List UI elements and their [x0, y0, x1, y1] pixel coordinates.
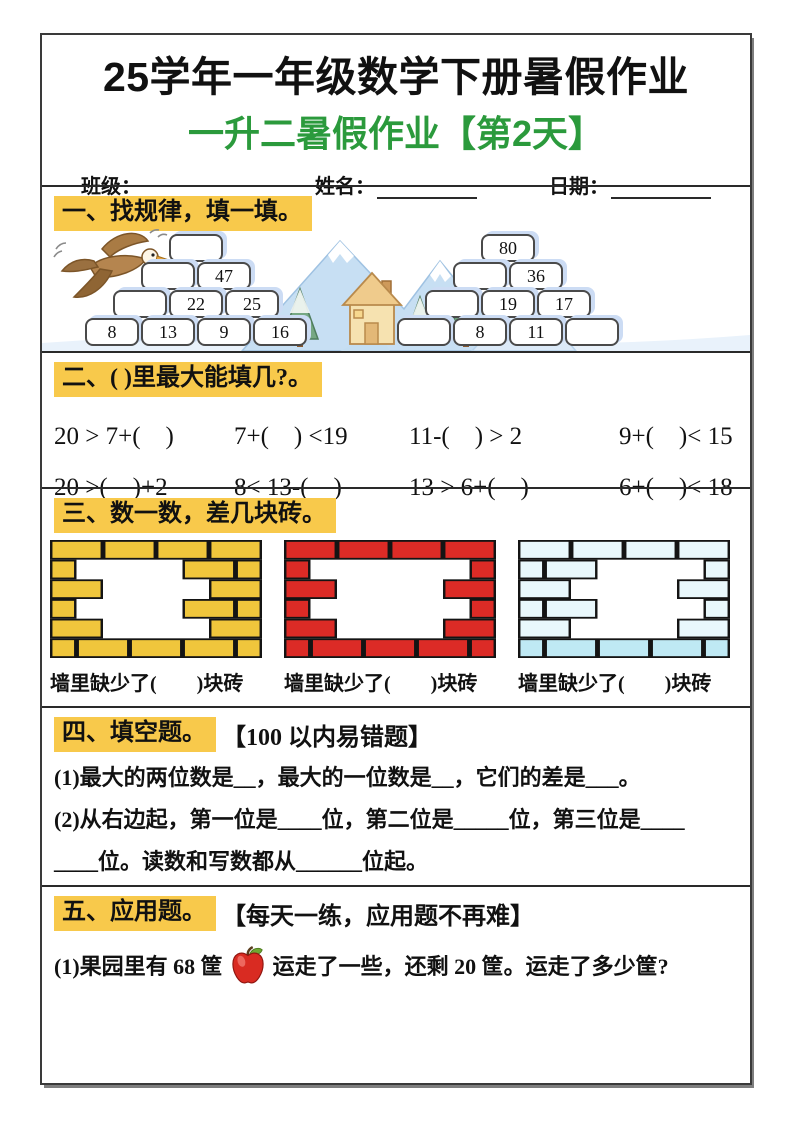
- pyramid-brick: 47: [197, 262, 251, 290]
- number-pyramid-left: 47 22 25 8 13 9 16: [84, 234, 308, 346]
- pyramid-brick: [565, 318, 619, 346]
- fill-blank-line: (1)最大的两位数是__，最大的一位数是__，它们的差是___。: [54, 757, 738, 799]
- section-2-max-fill: 二、( )里最大能填几?。 20 > 7+( ) 7+( ) <19 11-( …: [42, 351, 750, 487]
- wall-column: 墙里缺少了( )块砖: [50, 540, 274, 696]
- brick-wall-yellow: [50, 540, 262, 658]
- brick-wall-red: [284, 540, 496, 658]
- section-5-word-problem: 五、应用题。 【每天一练，应用题不再难】 (1)果园里有 68 筐 运走了一些，…: [42, 885, 750, 1083]
- wall-caption: 墙里缺少了( )块砖: [50, 667, 274, 696]
- section-4-title: 四、填空题。: [54, 717, 216, 752]
- section-5-title: 五、应用题。: [54, 896, 216, 931]
- worksheet-header: 25学年一年级数学下册暑假作业 一升二暑假作业【第2天】 班级： 姓名： 日期：: [42, 35, 750, 185]
- question-text-after: 运走了一些，还剩 20 筐。运走了多少筐?: [273, 949, 669, 981]
- section-2-title: 二、( )里最大能填几?。: [54, 362, 322, 397]
- wall-column: 墙里缺少了( )块砖: [518, 540, 742, 696]
- section-4-header: 四、填空题。 【100 以内易错题】: [42, 708, 750, 752]
- fill-blank-line: (2)从右边起，第一位是____位，第二位是_____位，第三位是____: [54, 799, 738, 841]
- page-subtitle: 一升二暑假作业【第2天】: [42, 105, 750, 157]
- equation-cell: 11-( ) > 2: [409, 416, 619, 452]
- worksheet-page: 25学年一年级数学下册暑假作业 一升二暑假作业【第2天】 班级： 姓名： 日期：…: [40, 33, 752, 1085]
- pyramid-brick: 22: [169, 290, 223, 318]
- section-3-count-bricks: 三、数一数，差几块砖。 墙里缺少了( )块砖 墙里缺少了( )块砖 墙里缺少了(…: [42, 487, 750, 706]
- pyramid-brick: 8: [453, 318, 507, 346]
- pyramid-brick: 11: [509, 318, 563, 346]
- equation-cell: 9+( )< 15: [619, 416, 740, 452]
- pyramid-brick: 80: [481, 234, 535, 262]
- pyramid-brick: 36: [509, 262, 563, 290]
- pyramid-brick: [113, 290, 167, 318]
- section-2-header: 二、( )里最大能填几?。: [42, 353, 750, 397]
- pyramid-brick: 9: [197, 318, 251, 346]
- question-line: (1)果园里有 68 筐 运走了一些，还剩 20 筐。运走了多少筐?: [42, 945, 750, 985]
- pyramid-brick: 16: [253, 318, 307, 346]
- pyramid-brick: 13: [141, 318, 195, 346]
- section-1-title: 一、找规律，填一填。: [54, 196, 312, 231]
- wall-caption: 墙里缺少了( )块砖: [284, 667, 508, 696]
- pyramid-brick: 8: [85, 318, 139, 346]
- pyramid-brick: [141, 262, 195, 290]
- wall-caption: 墙里缺少了( )块砖: [518, 667, 742, 696]
- section-1-pattern: 一、找规律，填一填。: [42, 185, 750, 351]
- number-pyramid-right: 80 36 19 17 8 11: [396, 234, 620, 346]
- pyramid-brick: [453, 262, 507, 290]
- apple-icon: [231, 945, 265, 985]
- equation-cell: 20 > 7+( ): [54, 416, 234, 452]
- equation-row-1: 20 > 7+( ) 7+( ) <19 11-( ) > 2 9+( )< 1…: [42, 416, 750, 452]
- page-title: 25学年一年级数学下册暑假作业: [42, 43, 750, 103]
- section-4-subtitle: 【100 以内易错题】: [222, 717, 432, 752]
- pyramid-brick: 17: [537, 290, 591, 318]
- section-4-fill-blanks: 四、填空题。 【100 以内易错题】 (1)最大的两位数是__，最大的一位数是_…: [42, 706, 750, 885]
- section-3-header: 三、数一数，差几块砖。: [42, 489, 750, 533]
- section-5-subtitle: 【每天一练，应用题不再难】: [222, 896, 534, 931]
- pyramid-brick: [397, 318, 451, 346]
- equation-cell: 7+( ) <19: [234, 416, 409, 452]
- wall-column: 墙里缺少了( )块砖: [284, 540, 508, 696]
- section-3-title: 三、数一数，差几块砖。: [54, 498, 336, 533]
- pyramid-brick: 25: [225, 290, 279, 318]
- pyramid-brick: 19: [481, 290, 535, 318]
- pyramid-brick: [169, 234, 223, 262]
- section-5-header: 五、应用题。 【每天一练，应用题不再难】: [42, 887, 750, 931]
- question-text-before: (1)果园里有 68 筐: [54, 949, 223, 981]
- section-1-header: 一、找规律，填一填。: [42, 187, 750, 231]
- pyramid-brick: [425, 290, 479, 318]
- brick-wall-blue: [518, 540, 730, 658]
- fill-blank-lines: (1)最大的两位数是__，最大的一位数是__，它们的差是___。 (2)从右边起…: [42, 757, 750, 883]
- fill-blank-line: ____位。读数和写数都从______位起。: [54, 841, 738, 883]
- brick-walls-row: 墙里缺少了( )块砖 墙里缺少了( )块砖 墙里缺少了( )块砖: [42, 533, 750, 696]
